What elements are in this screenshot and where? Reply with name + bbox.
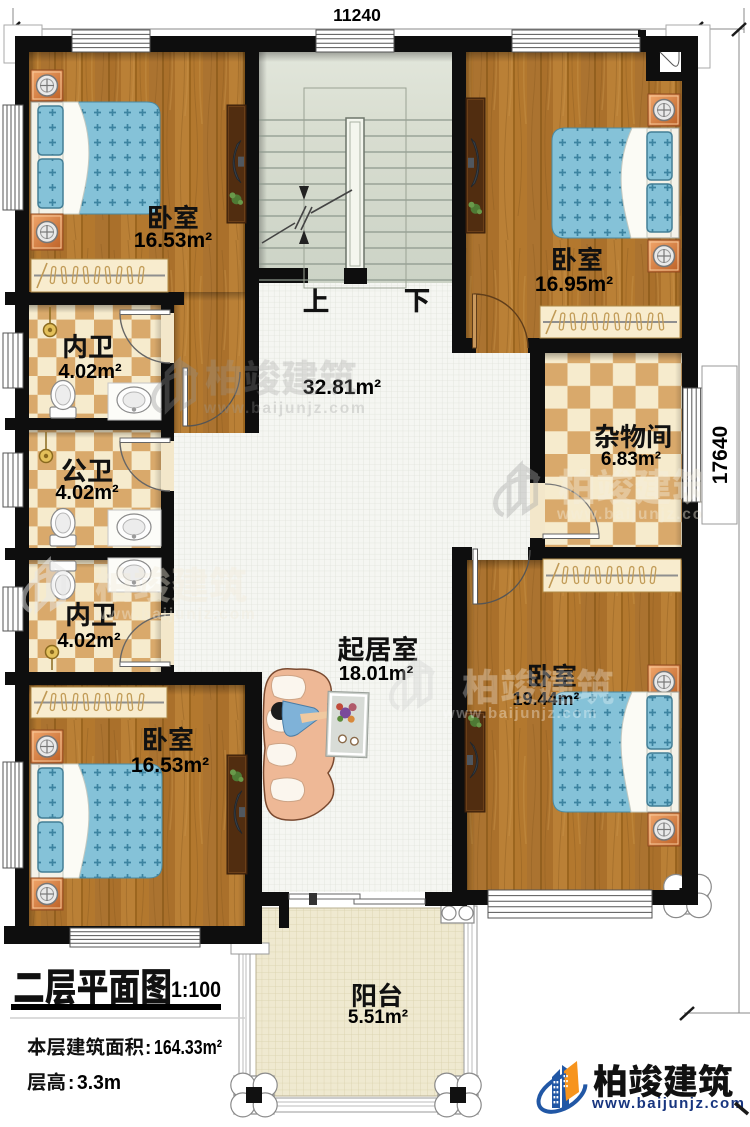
svg-text:www.baijunjz.com: www.baijunjz.com (442, 705, 598, 722)
svg-text:16.95m²: 16.95m² (535, 273, 613, 296)
svg-text:164.33m²: 164.33m² (154, 1037, 222, 1059)
svg-text:www.baijunjz.com: www.baijunjz.com (556, 506, 720, 523)
svg-text:1:100: 1:100 (171, 977, 221, 1002)
svg-text:www.baijunjz.com: www.baijunjz.com (203, 400, 367, 417)
svg-text:www.baijunjz.com: www.baijunjz.com (93, 606, 257, 623)
svg-text:6.83m²: 6.83m² (601, 449, 661, 470)
svg-text::: : (145, 1038, 151, 1059)
svg-text::: : (68, 1073, 74, 1094)
svg-text:4.02m²: 4.02m² (58, 361, 122, 383)
svg-text:16.53m²: 16.53m² (131, 754, 209, 777)
svg-text:5.51m²: 5.51m² (348, 1007, 408, 1028)
svg-text:4.02m²: 4.02m² (55, 482, 119, 504)
svg-text:17640: 17640 (709, 426, 732, 484)
svg-text:3.3m: 3.3m (77, 1072, 121, 1094)
svg-text:4.02m²: 4.02m² (57, 630, 121, 652)
svg-text:11240: 11240 (333, 5, 381, 25)
svg-text:16.53m²: 16.53m² (134, 229, 212, 252)
svg-text:www.baijunjz.com: www.baijunjz.com (591, 1095, 745, 1112)
